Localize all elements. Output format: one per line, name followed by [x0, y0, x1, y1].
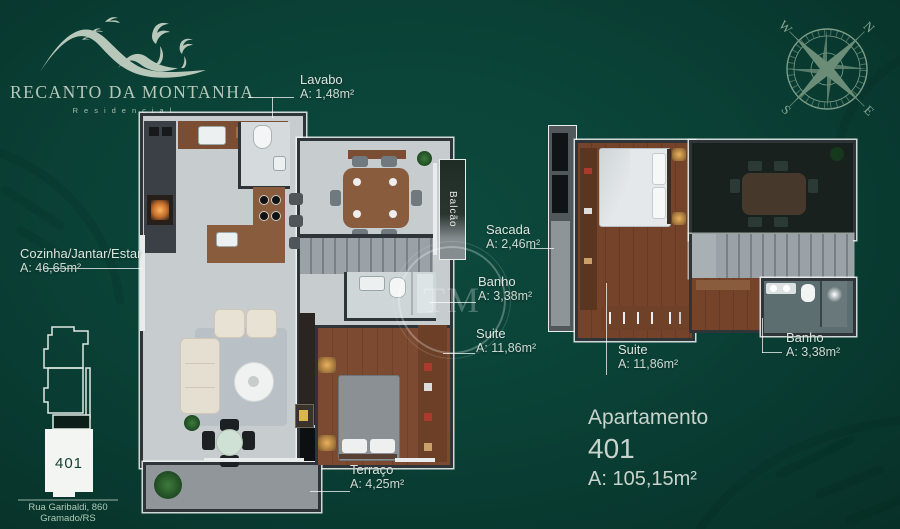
- mezzanine-void: [689, 140, 856, 240]
- cafe-chair: [202, 431, 215, 450]
- apartment-area: A: 105,15m²: [588, 468, 708, 491]
- dining-chair: [381, 156, 397, 167]
- kitchen-cabinet-column: [144, 121, 176, 253]
- leader-lavabo: [248, 97, 294, 98]
- label-lavabo: Lavabo A: 1,48m²: [300, 72, 354, 102]
- living-plant: [184, 415, 200, 431]
- coffee-table: [234, 362, 274, 402]
- nightstand-lamp: [318, 357, 336, 373]
- address-line1: Rua Garibaldi, 860: [12, 502, 124, 513]
- label-cozinha: Cozinha/Jantar/Estar A: 46,65m²: [20, 246, 141, 276]
- label-banho-upper: Banho A: 3,38m²: [786, 330, 840, 360]
- sacada-strip: [548, 125, 577, 332]
- leader-terraco: [310, 491, 350, 492]
- leader-banho2-h: [762, 352, 782, 353]
- watermark: TM: [398, 246, 506, 354]
- upper-wardrobe: [580, 148, 597, 310]
- label-terraco: Terraço A: 4,25m²: [350, 462, 404, 492]
- bar-stool: [289, 193, 303, 205]
- upper-toilet: [801, 284, 815, 302]
- upper-hall-floor: [689, 278, 764, 333]
- upper-stairs: [689, 234, 853, 278]
- sofa: [180, 338, 220, 414]
- building-locator: 401: [18, 318, 128, 508]
- watermark-text: TM: [423, 279, 481, 321]
- suite-bed: [338, 375, 400, 461]
- poster-canvas: RECANTO DA MONTANHA Residencial N E: [0, 0, 900, 529]
- compass-w: W: [776, 17, 796, 37]
- cafe-chair: [242, 431, 255, 450]
- compass-s: S: [778, 102, 794, 118]
- terrace-floor: [143, 462, 321, 512]
- fireplace: [147, 195, 173, 225]
- address-block: Rua Garibaldi, 860 Gramado/RS: [12, 502, 124, 524]
- closet-rack: [601, 306, 691, 330]
- armchair: [214, 309, 245, 338]
- balcony-door: [433, 163, 437, 255]
- island-sink: [216, 232, 238, 247]
- armchair: [246, 309, 277, 338]
- dining-plant: [417, 151, 432, 166]
- balcony-label: Balcão: [447, 191, 458, 228]
- brand-name: RECANTO DA MONTANHA: [10, 82, 240, 103]
- bar-stool: [289, 215, 303, 227]
- label-suite-upper: Suite A: 11,86m²: [618, 342, 678, 372]
- kitchen-sink: [198, 126, 226, 145]
- upper-bed: [599, 148, 671, 227]
- terrace-plant: [154, 471, 182, 499]
- dining-chair: [352, 156, 368, 167]
- lavabo-toilet: [253, 125, 272, 149]
- leader-banho2-v: [762, 318, 763, 353]
- tv-rack: [300, 428, 315, 461]
- upper-nightstand-lamp: [672, 148, 686, 161]
- locator-unit-number: 401: [55, 455, 83, 472]
- lavabo-room: [238, 122, 290, 189]
- dining-chair: [411, 190, 422, 206]
- brand-logo: RECANTO DA MONTANHA Residencial: [10, 10, 240, 120]
- dining-chair: [330, 190, 341, 206]
- address-line2: Gramado/RS: [12, 513, 124, 524]
- bathroom-sink: [359, 276, 385, 291]
- compass-rose: N E S W: [764, 6, 890, 132]
- upper-nightstand-lamp: [672, 212, 686, 225]
- leader-suite2: [606, 283, 607, 375]
- apartment-number: 401: [588, 433, 708, 465]
- framed-art: [295, 404, 314, 428]
- cafe-table: [216, 429, 243, 456]
- upper-bathroom: [761, 278, 856, 336]
- kitchen-island: [207, 225, 285, 263]
- compass-e: E: [861, 102, 877, 118]
- apartment-label: Apartamento: [588, 406, 708, 430]
- dining-table: [343, 168, 409, 228]
- nightstand-lamp: [318, 435, 336, 451]
- apartment-title-block: Apartamento 401 A: 105,15m²: [588, 406, 708, 491]
- leader-lavabo-v: [272, 97, 273, 118]
- label-sacada: Sacada A: 2,46m²: [486, 222, 540, 252]
- floorplan-upper: [548, 118, 850, 340]
- lavabo-sink: [273, 156, 286, 171]
- terrace-door: [204, 458, 304, 462]
- mountain-logo-icon: [10, 10, 240, 82]
